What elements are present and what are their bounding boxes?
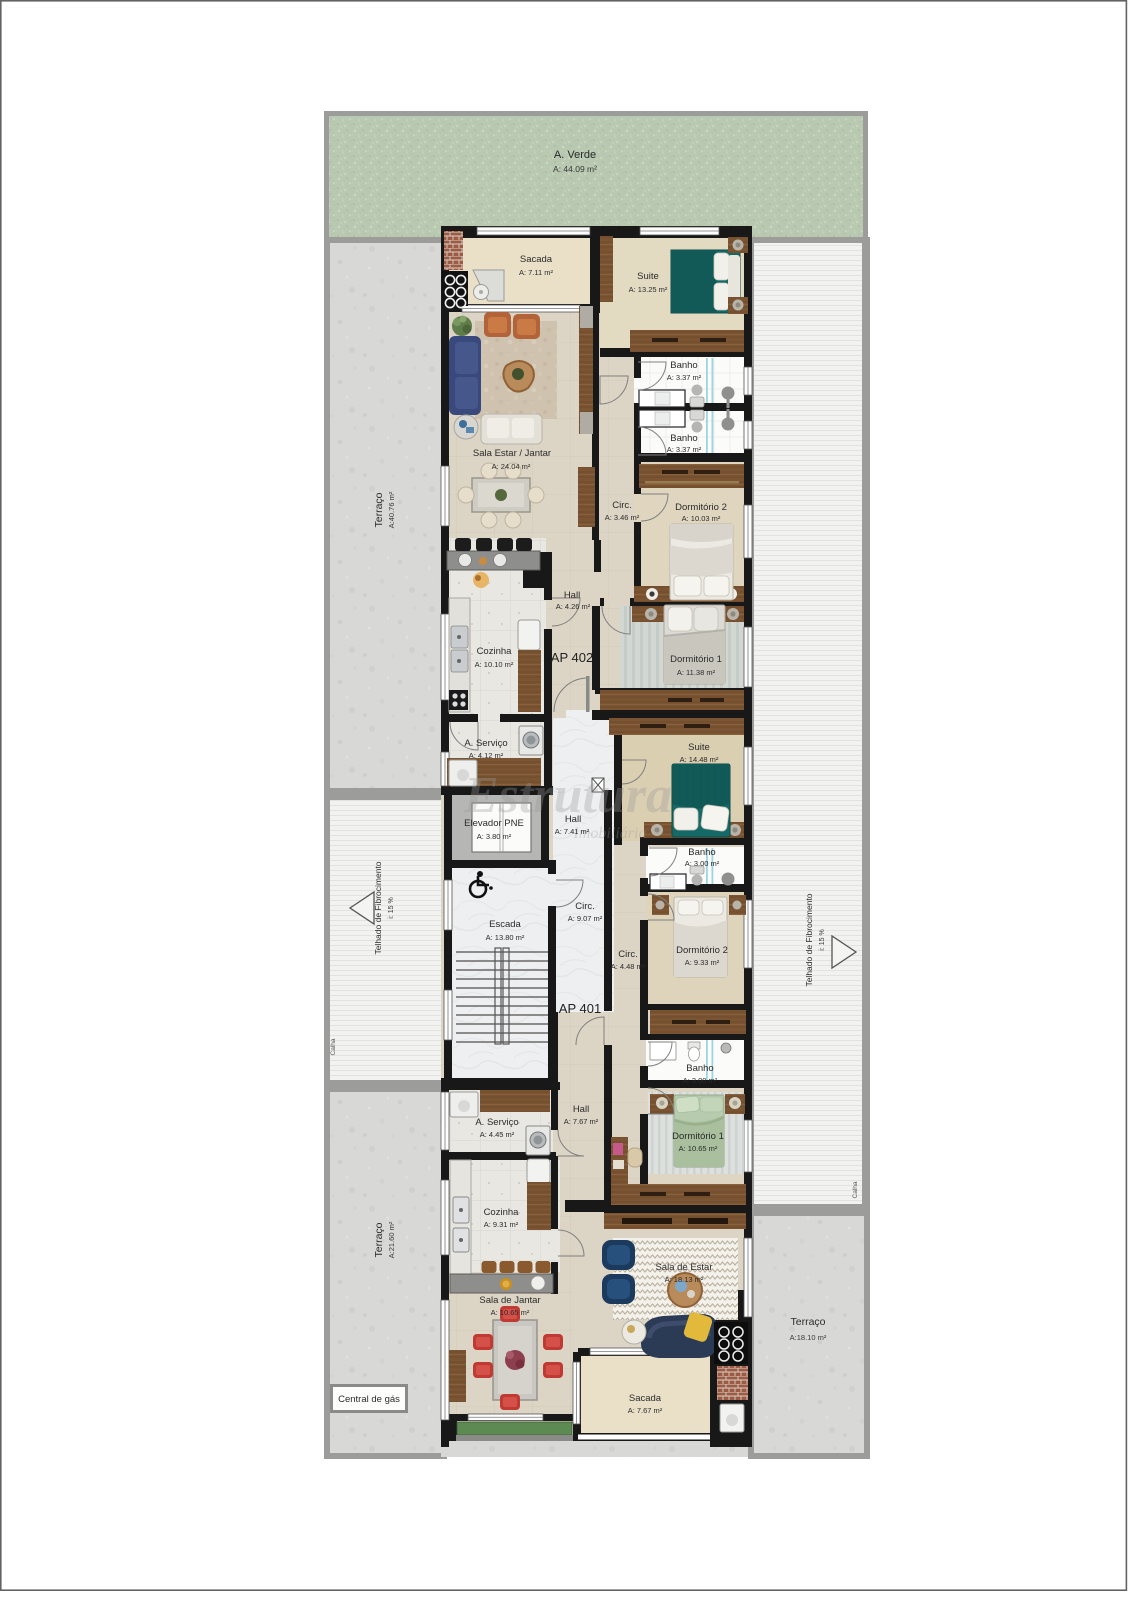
svg-text:Calha: Calha xyxy=(852,1181,859,1198)
svg-text:Banho: Banho xyxy=(686,1063,713,1074)
svg-text:A: 4.12 m²: A: 4.12 m² xyxy=(469,751,504,760)
svg-text:A: 11.38 m²: A: 11.38 m² xyxy=(677,668,716,677)
svg-text:Suite: Suite xyxy=(637,271,659,282)
svg-text:A:18.10 m²: A:18.10 m² xyxy=(790,1333,827,1342)
svg-text:Hall: Hall xyxy=(573,1104,589,1115)
svg-text:Terraço: Terraço xyxy=(373,1222,385,1257)
svg-text:Hall: Hall xyxy=(564,590,580,601)
svg-text:Banho: Banho xyxy=(670,360,697,371)
svg-text:A: 9.31 m²: A: 9.31 m² xyxy=(484,1220,519,1229)
svg-text:Calha: Calha xyxy=(330,1038,337,1055)
svg-text:Telhado de Fibrocimento: Telhado de Fibrocimento xyxy=(804,893,814,986)
svg-text:Sacada: Sacada xyxy=(629,1393,662,1404)
svg-text:A: 9.07 m²: A: 9.07 m² xyxy=(568,914,603,923)
svg-text:A: 7.67 m²: A: 7.67 m² xyxy=(564,1117,599,1126)
svg-text:A: 4.26 m²: A: 4.26 m² xyxy=(556,602,591,611)
svg-text:Dormitório 1: Dormitório 1 xyxy=(672,1131,724,1142)
svg-text:Dormitório 2: Dormitório 2 xyxy=(676,945,728,956)
svg-text:A: 14.48 m²: A: 14.48 m² xyxy=(680,755,719,764)
svg-text:Central de gás: Central de gás xyxy=(338,1394,400,1405)
svg-text:Sala de Estar: Sala de Estar xyxy=(655,1262,712,1273)
svg-text:Cozinha: Cozinha xyxy=(484,1207,520,1218)
svg-text:A: 7.67 m²: A: 7.67 m² xyxy=(628,1406,663,1415)
svg-text:A: 4.48 m²: A: 4.48 m² xyxy=(611,962,646,971)
svg-text:A:40.76 m²: A:40.76 m² xyxy=(387,491,396,528)
svg-text:Hall: Hall xyxy=(565,814,581,825)
svg-text:Sacada: Sacada xyxy=(520,254,553,265)
svg-text:A: 44.09 m²: A: 44.09 m² xyxy=(553,164,597,174)
svg-text:Dormitório 1: Dormitório 1 xyxy=(670,654,722,665)
svg-text:A: 3.80 m²: A: 3.80 m² xyxy=(477,832,512,841)
svg-text:A. Serviço: A. Serviço xyxy=(464,738,507,749)
svg-text:Dormitório 2: Dormitório 2 xyxy=(675,502,727,513)
svg-text:Elevador PNE: Elevador PNE xyxy=(464,818,524,829)
svg-text:Circ.: Circ. xyxy=(575,901,595,912)
svg-text:A: 7.11 m²: A: 7.11 m² xyxy=(519,268,554,277)
svg-text:AP 401: AP 401 xyxy=(559,1001,601,1016)
svg-text:A: 3.00 m²: A: 3.00 m² xyxy=(683,1076,718,1085)
svg-text:AP 402: AP 402 xyxy=(551,650,593,665)
svg-text:Escada: Escada xyxy=(489,919,521,930)
svg-text:Circ.: Circ. xyxy=(612,500,632,511)
svg-text:Terraço: Terraço xyxy=(790,1316,825,1328)
svg-text:i: 15 %: i: 15 % xyxy=(819,929,826,950)
svg-text:A. Serviço: A. Serviço xyxy=(475,1117,518,1128)
svg-text:A. Verde: A. Verde xyxy=(554,149,596,161)
svg-text:A: 3.37 m²: A: 3.37 m² xyxy=(667,373,702,382)
svg-text:A: 10.10 m²: A: 10.10 m² xyxy=(475,660,514,669)
svg-text:Cozinha: Cozinha xyxy=(477,646,513,657)
svg-text:i: 15 %: i: 15 % xyxy=(388,897,395,918)
svg-text:A: 10.03 m²: A: 10.03 m² xyxy=(682,514,721,523)
svg-text:Circ.: Circ. xyxy=(618,949,638,960)
svg-text:Sala Estar / Jantar: Sala Estar / Jantar xyxy=(473,448,551,459)
svg-text:A: 3.00 m²: A: 3.00 m² xyxy=(685,859,720,868)
svg-text:Suite: Suite xyxy=(688,742,710,753)
svg-text:A: 13.80 m²: A: 13.80 m² xyxy=(486,933,525,942)
svg-text:A: 3.46 m²: A: 3.46 m² xyxy=(605,513,640,522)
svg-text:Sala de Jantar: Sala de Jantar xyxy=(479,1295,540,1306)
svg-text:A: 9.33 m²: A: 9.33 m² xyxy=(685,958,720,967)
svg-text:A: 24.04 m²: A: 24.04 m² xyxy=(492,462,531,471)
svg-text:A: 3.37 m²: A: 3.37 m² xyxy=(667,445,702,454)
svg-text:A: 13.25 m²: A: 13.25 m² xyxy=(629,285,668,294)
svg-text:A: 4.45 m²: A: 4.45 m² xyxy=(480,1130,515,1139)
svg-text:A: 18.13 m²: A: 18.13 m² xyxy=(665,1275,704,1284)
svg-text:A: 10.65 m²: A: 10.65 m² xyxy=(679,1144,718,1153)
svg-text:A: 10.65 m²: A: 10.65 m² xyxy=(491,1308,530,1317)
svg-text:Banho: Banho xyxy=(670,433,697,444)
svg-text:Terraço: Terraço xyxy=(373,492,385,527)
svg-text:A: 7.41 m²: A: 7.41 m² xyxy=(555,827,590,836)
svg-text:A:21.60 m²: A:21.60 m² xyxy=(387,1221,396,1258)
svg-text:Banho: Banho xyxy=(688,847,715,858)
